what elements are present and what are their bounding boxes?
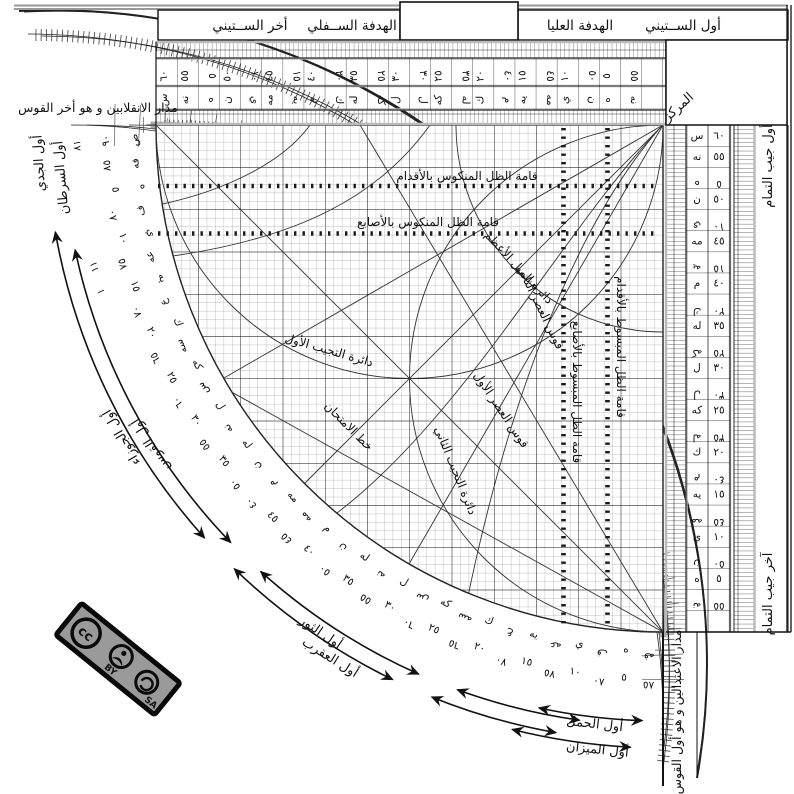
top-scale-letter: ن <box>221 96 233 104</box>
arc-scale-letter: نه <box>221 422 236 436</box>
right-scale-letter: كه <box>692 347 703 359</box>
arc-scale-complement: ٣٥ <box>216 453 232 469</box>
arc-scale-letter: ك <box>171 316 185 328</box>
arc-scale-complement: ٥٠ <box>317 562 333 578</box>
arc-scale-degree: ٥ <box>621 671 627 683</box>
arc-scale-letter: فه <box>129 158 142 169</box>
top-scale-value: ٤٥ <box>264 70 276 81</box>
right-scale-letter: ه <box>694 573 700 585</box>
top-scale-complement: ١٠ <box>248 70 260 81</box>
zodiac-arrow-5 <box>457 690 579 720</box>
right-scale-letter: م <box>694 474 701 486</box>
arc-scale-letter: س <box>413 590 430 607</box>
sa-icon <box>131 667 162 698</box>
top-scale-value: ٢٠ <box>475 70 487 81</box>
arc-scale-letter: ك <box>483 614 495 628</box>
top-scale-letter: كه <box>432 95 444 106</box>
arc-scale-complement: ٢٠ <box>144 325 159 340</box>
arc-scale-degree: ٣٠ <box>382 599 398 615</box>
top-scale-value: ٥ <box>601 73 613 79</box>
sparse-number-0: ٨١ <box>72 140 83 151</box>
arc-scale-letter: كه <box>189 357 205 372</box>
top-scale-value: ٥٠ <box>221 70 233 81</box>
top-scale-letter: م <box>502 97 514 104</box>
arc-scale-complement: ٥٥ <box>358 591 374 607</box>
right-scale-complement: ٤٥ <box>713 516 724 528</box>
arc-scale-degree: ٤٠ <box>301 542 317 558</box>
arc-scale-letter: كه <box>438 596 453 611</box>
person-head <box>120 650 127 657</box>
sparse-number-2: ١ <box>96 287 108 295</box>
arc-scale-degree: ٩٠ <box>100 135 112 147</box>
top-scale-letter: مه <box>544 94 556 105</box>
right-scale-letter: ك <box>693 447 702 459</box>
top-scale-letter: يه <box>517 96 529 105</box>
top-tick-band-outer <box>156 42 666 58</box>
top-scale-value: ٤٠ <box>306 70 318 81</box>
right-scale-letter: كه <box>692 404 703 416</box>
top-frame: أخر الســتيني الهدفة الســفلي الهدفة الع… <box>14 2 788 40</box>
sine-quadrant-plate: { "tabs": { "first_sixty": "أول الســتين… <box>0 0 794 794</box>
arc-scale-degree: ١٠ <box>569 665 582 679</box>
top-scale-letter: ن <box>586 96 598 104</box>
top-scale-value: ٦٠ <box>158 70 170 81</box>
right-scale-letter: ل <box>693 389 701 401</box>
arc-scale-complement: ٣٠ <box>188 413 204 429</box>
right-scale-complement: ٥٠ <box>713 558 724 570</box>
top-scale-complement: ٣٠ <box>417 70 429 81</box>
arc-scale-complement: ٧٥ <box>543 666 556 680</box>
equinox-strip: مدار الاعتدالين و هو أول القوس <box>663 630 697 794</box>
top-scale-letter: يه <box>291 96 303 105</box>
zodiac-label-6: أول الحمل <box>566 712 624 735</box>
right-scale-letter: ن <box>693 193 701 205</box>
arc-scale-letter: س <box>195 380 212 397</box>
right-scale-letter: ي <box>693 531 701 543</box>
top-scale-letter: مه <box>264 94 276 105</box>
right-scale-value: ٢٥ <box>713 404 724 416</box>
right-scale-complement: ٢٥ <box>713 347 724 359</box>
top-scale-letter: ك <box>475 96 487 105</box>
top-scale-value: ٣٥ <box>348 70 360 81</box>
sight-block <box>400 2 518 40</box>
zodiac-label-7: أول الميزان <box>565 737 629 760</box>
arc-scale-degree: ٥٥ <box>197 437 213 453</box>
arc-scale-letter: ل <box>398 575 411 589</box>
arc-scale-degree: ٧٥ <box>116 257 130 271</box>
arc-scale-degree: ٥٠ <box>227 476 243 492</box>
arc-scale-complement: ٢٥ <box>164 370 180 385</box>
top-scale-letter: م <box>306 97 318 104</box>
arc-scale-complement: ٤٥ <box>278 530 294 546</box>
tab-first-sixty: أول الســتيني <box>645 16 721 34</box>
arc-scale-letter: ن <box>335 541 348 555</box>
right-scale-letter: ك <box>693 305 702 317</box>
tab-lower-sight: الهدفة الســفلي <box>307 18 397 34</box>
top-scale-letter: ه <box>601 97 613 103</box>
right-scale-letter: له <box>693 431 702 443</box>
right-scale-complement: ٤٠ <box>713 474 724 486</box>
right-scale-complement: ١٠ <box>713 220 724 232</box>
arc-scale-letter: ف <box>596 646 608 659</box>
arc-scale-degree: ٣٥ <box>340 572 356 588</box>
arc-scale-degree: ٨٠ <box>106 209 120 222</box>
top-scale-letter: ل <box>417 96 429 104</box>
top-scale-value: ١٥ <box>517 70 529 81</box>
digits-reversed-label: قامة الظل المنكوس بالأصابع <box>357 214 499 230</box>
arc-scale-degree: ٦٥ <box>148 350 164 365</box>
arc-scale-letter: ه <box>623 643 629 655</box>
right-scale-letter: يه <box>693 489 702 501</box>
arc-scale-degree: ٨٥ <box>101 160 114 172</box>
right-scale-value: ٥ <box>716 573 722 585</box>
right-scale-value: ٦٠ <box>713 130 724 142</box>
arc-scale-degree: ٤٥ <box>265 509 281 525</box>
arc-scale-letter: م <box>321 522 334 535</box>
right-scale-letter: نه <box>693 151 702 163</box>
top-scale-value: ٣٠ <box>390 70 402 81</box>
last-cosine-label: آخر جيب التمام <box>759 551 776 635</box>
feet-extended-label: قامة الظل المبسوط بالأقدام <box>613 276 629 418</box>
arc-scale-letter: مه <box>285 489 301 505</box>
arc-scale-letter: مه <box>298 509 314 525</box>
top-scale-complement: ٣٥ <box>459 70 471 81</box>
right-scale-value: ٢٠ <box>713 447 724 459</box>
top-scale-letter: نه <box>628 96 640 105</box>
top-scale-complement: ٥ <box>206 73 218 79</box>
arc-scale-letter: م <box>266 478 279 491</box>
arc-scale-degree: ٦٠ <box>170 395 186 411</box>
arc-scale-complement: ٨٠ <box>592 675 605 688</box>
right-scale-letter: له <box>693 320 702 332</box>
top-scale-letter: ل <box>390 96 402 104</box>
right-scale-complement: ٥ <box>716 178 722 190</box>
arc-scale-letter: ن <box>250 459 264 473</box>
right-scale-letter: س <box>691 130 704 142</box>
arc-scale-letter: ص <box>128 134 140 147</box>
top-scale-letter: له <box>459 96 471 105</box>
right-scale-letter: ل <box>693 362 701 374</box>
right-scale-value: ٣٥ <box>713 320 724 332</box>
right-scale-value: ٤٠ <box>713 278 724 290</box>
arc-scale-complement: ٨٥ <box>643 679 655 691</box>
arc-scale-degree: ٢٠ <box>472 640 487 655</box>
right-scale-letter: مه <box>691 236 702 248</box>
arc-scale-letter: ي <box>144 227 157 237</box>
arc-scale-letter: ي <box>575 637 585 650</box>
top-scale-letter: ك <box>333 96 345 105</box>
tab-last-sixty: أخر الســتيني <box>212 16 287 34</box>
right-scale-letter: م <box>694 278 701 290</box>
top-scale-letter: ه <box>206 97 218 103</box>
arc-scale-letter: عه <box>143 250 158 264</box>
arc-scale-letter: ع <box>157 297 171 308</box>
feet-reversed-label: قامة الظل المنكوس بالأقدام <box>396 168 537 184</box>
arc-scale-letter: له <box>357 549 371 564</box>
right-scale-letter: ي <box>693 220 701 232</box>
top-scale-complement: ٤٥ <box>544 70 556 81</box>
top-tick-band-inner <box>156 110 666 124</box>
right-scale-value: ٥٥ <box>713 151 724 163</box>
top-scale-complement: ٢٥ <box>375 70 387 81</box>
top-scale-complement: ٢٠ <box>333 70 345 81</box>
arc-scale-letter: ه <box>138 183 151 190</box>
top-scale-letter: ي <box>559 96 571 104</box>
solstice-label: مدار الانقلابين و هو أخر القوس <box>18 99 178 116</box>
zodiac-label-1: أول السرطان <box>49 140 72 215</box>
arc-scale-complement: ٤٠ <box>243 495 259 511</box>
right-scale-value: ٣٠ <box>713 362 724 374</box>
sa-text: SA <box>142 695 159 711</box>
digits-extended-label: قامة الظل المبسوط بالأصابع <box>569 321 585 464</box>
arc-scale-letter: يه <box>528 627 539 641</box>
right-tick-band-outer <box>734 125 754 632</box>
equinox-label: مدار الاعتدالين و هو أول القوس <box>668 630 685 794</box>
top-scale-complement: ٤٠ <box>502 70 514 81</box>
top-scale-complement: ٥٥ <box>628 70 640 81</box>
right-scale-letter: ه <box>694 178 700 190</box>
top-scale-complement: ٥٠ <box>586 70 598 81</box>
right-scale-complement: ٣٠ <box>713 389 724 401</box>
arc-scale-complement: ٦٠ <box>401 616 417 632</box>
top-scale-complement: ١٥ <box>291 70 303 81</box>
arc-scale-letter: ع <box>504 627 514 641</box>
right-tick-band-inner <box>666 125 686 632</box>
arc-scale-complement: ٧٠ <box>494 654 508 669</box>
arc-scale-letter: ف <box>134 204 148 217</box>
right-scale-complement: ٢٠ <box>713 305 724 317</box>
arc-scale-letter: نه <box>374 568 388 583</box>
top-scale-value: ١٠ <box>559 70 571 81</box>
arc-scale-complement: ٥ <box>109 186 122 193</box>
arc-scale-degree: ٢٥ <box>426 621 441 637</box>
first-cosine-label: أول جيب التمام <box>759 124 776 207</box>
top-scale-letter: ي <box>248 96 260 104</box>
right-scale-letter: مه <box>691 516 702 528</box>
cc-icon-text: cc <box>74 624 95 645</box>
right-scale-letter: نه <box>693 600 702 612</box>
arc-scale-letter: سه <box>456 610 474 627</box>
right-scale-complement: ٥٥ <box>713 600 724 612</box>
right-scale-value: ٥٠ <box>713 193 724 205</box>
top-scale <box>156 42 666 125</box>
arc-scale-letter: له <box>239 437 254 451</box>
right-scale-letter: ن <box>693 558 701 570</box>
zodiac-label-0: أول الجدي <box>28 135 48 192</box>
right-scale-value: ١٠ <box>713 531 724 543</box>
arc-scale-degree: ٧٠ <box>130 304 145 319</box>
arc-scale-letter: فه <box>644 650 655 662</box>
right-scale-value: ١٥ <box>713 489 724 501</box>
arc-scale-letter: عه <box>548 638 562 652</box>
top-scale-letter: له <box>348 96 360 105</box>
arc-scale-complement: ١٥ <box>128 279 143 293</box>
right-scale-complement: ١٥ <box>713 263 724 275</box>
arc-scale-letter: سه <box>173 337 190 355</box>
top-scale-letter: س <box>158 94 170 107</box>
arc-scale-complement: ١٠ <box>116 232 130 245</box>
arc-scale-letter: ل <box>213 399 227 412</box>
right-scale-complement: ٣٥ <box>713 431 724 443</box>
top-scale-value: ٢٥ <box>432 70 444 81</box>
right-scale-value: ٤٥ <box>713 236 724 248</box>
right-scale-letter: يه <box>693 263 702 275</box>
arc-scale-degree: ١٥ <box>520 655 534 669</box>
arc-scale-complement: ٦٥ <box>447 637 462 652</box>
top-scale-letter: نه <box>179 96 191 105</box>
sparse-number-1: ١١ <box>88 260 101 273</box>
arc-scale-letter: يه <box>156 272 170 284</box>
tab-upper-sight: الهدفة العليا <box>547 18 613 34</box>
top-scale-value: ٥٥ <box>179 70 191 81</box>
top-scale-letter: كه <box>375 95 387 106</box>
